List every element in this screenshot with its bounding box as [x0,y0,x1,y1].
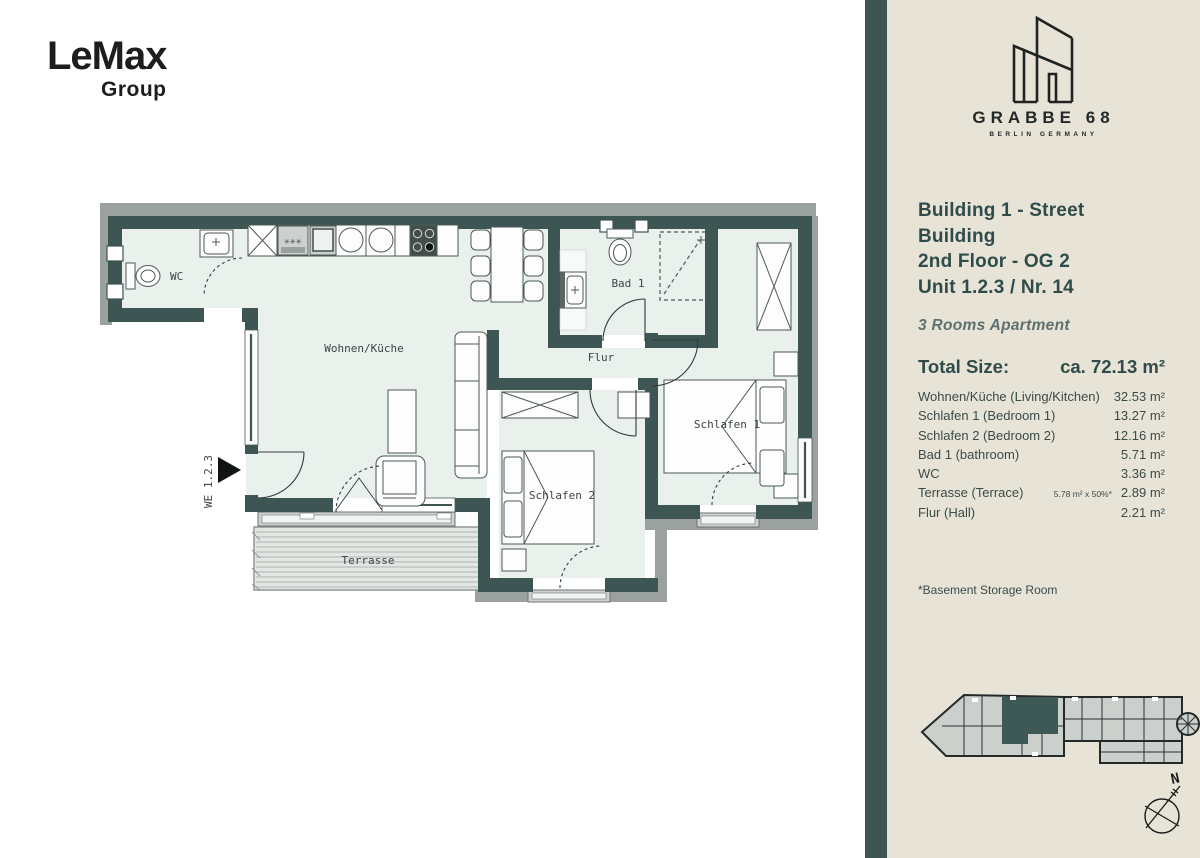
lemax-logo-sub: Group [47,79,167,100]
unit-number-line: Unit 1.2.3 / Nr. 14 [918,275,1165,301]
basement-footnote: *Basement Storage Room [918,583,1057,597]
unit-id-label: WE 1.2.3 [202,455,215,508]
sidebar-accent-bar [865,0,887,858]
floor-plan: ✳✳✳ [98,196,820,608]
living-label: Wohnen/Küche [324,342,403,355]
total-size-label: Total Size: [918,356,1009,378]
unit-type: 3 Rooms Apartment [918,317,1165,335]
table-row: Bad 1 (bathroom) 5.71 m² [918,447,1165,466]
total-size-value: ca. 72.13 m² [1060,356,1165,378]
unit-floor-line: 2nd Floor - OG 2 [918,249,1165,275]
table-row: WC 3.36 m² [918,466,1165,485]
lemax-logo-name: LeMax [47,36,167,76]
table-row: Flur (Hall) 2.21 m² [918,505,1165,524]
grabbe-logo-icon [994,12,1094,104]
svg-text:✳✳✳: ✳✳✳ [284,238,302,246]
lemax-logo: LeMax Group [47,36,167,100]
unit-building-line: Building 1 - Street Building [918,198,1165,249]
wc-label: WC [170,270,183,283]
compass-north-label: N [1170,771,1182,788]
unit-info: Building 1 - Street Building 2nd Floor -… [918,198,1165,378]
terrace-label: Terrasse [342,554,395,567]
building-key-plan [912,686,1200,774]
table-row: Wohnen/Küche (Living/Kitchen) 32.53 m² [918,389,1165,408]
compass-icon: N [1128,766,1200,852]
info-sidebar: GRABBE 68 BERLIN GERMANY Building 1 - St… [865,0,1200,858]
table-row: Schlafen 2 (Bedroom 2) 12.16 m² [918,428,1165,447]
room-size-table: Wohnen/Küche (Living/Kitchen) 32.53 m² S… [918,389,1165,524]
table-row: Schlafen 1 (Bedroom 1) 13.27 m² [918,408,1165,427]
flur-label: Flur [588,351,615,364]
grabbe-logo-name: GRABBE 68 [972,108,1114,128]
grabbe-logo-location: BERLIN GERMANY [989,131,1097,138]
bad-label: Bad 1 [611,277,644,290]
kitchen-counter: ✳✳✳ [248,225,458,256]
bedroom2-label: Schlafen 2 [529,489,595,502]
table-row: Terrasse (Terrace) 5.78 m² x 50%* 2.89 m… [918,485,1165,504]
total-size-row: Total Size: ca. 72.13 m² [918,356,1165,378]
dining-table [471,227,543,302]
entrance-arrow [218,457,241,483]
grabbe-logo: GRABBE 68 BERLIN GERMANY [887,12,1200,138]
bedroom1-label: Schlafen 1 [694,418,760,431]
